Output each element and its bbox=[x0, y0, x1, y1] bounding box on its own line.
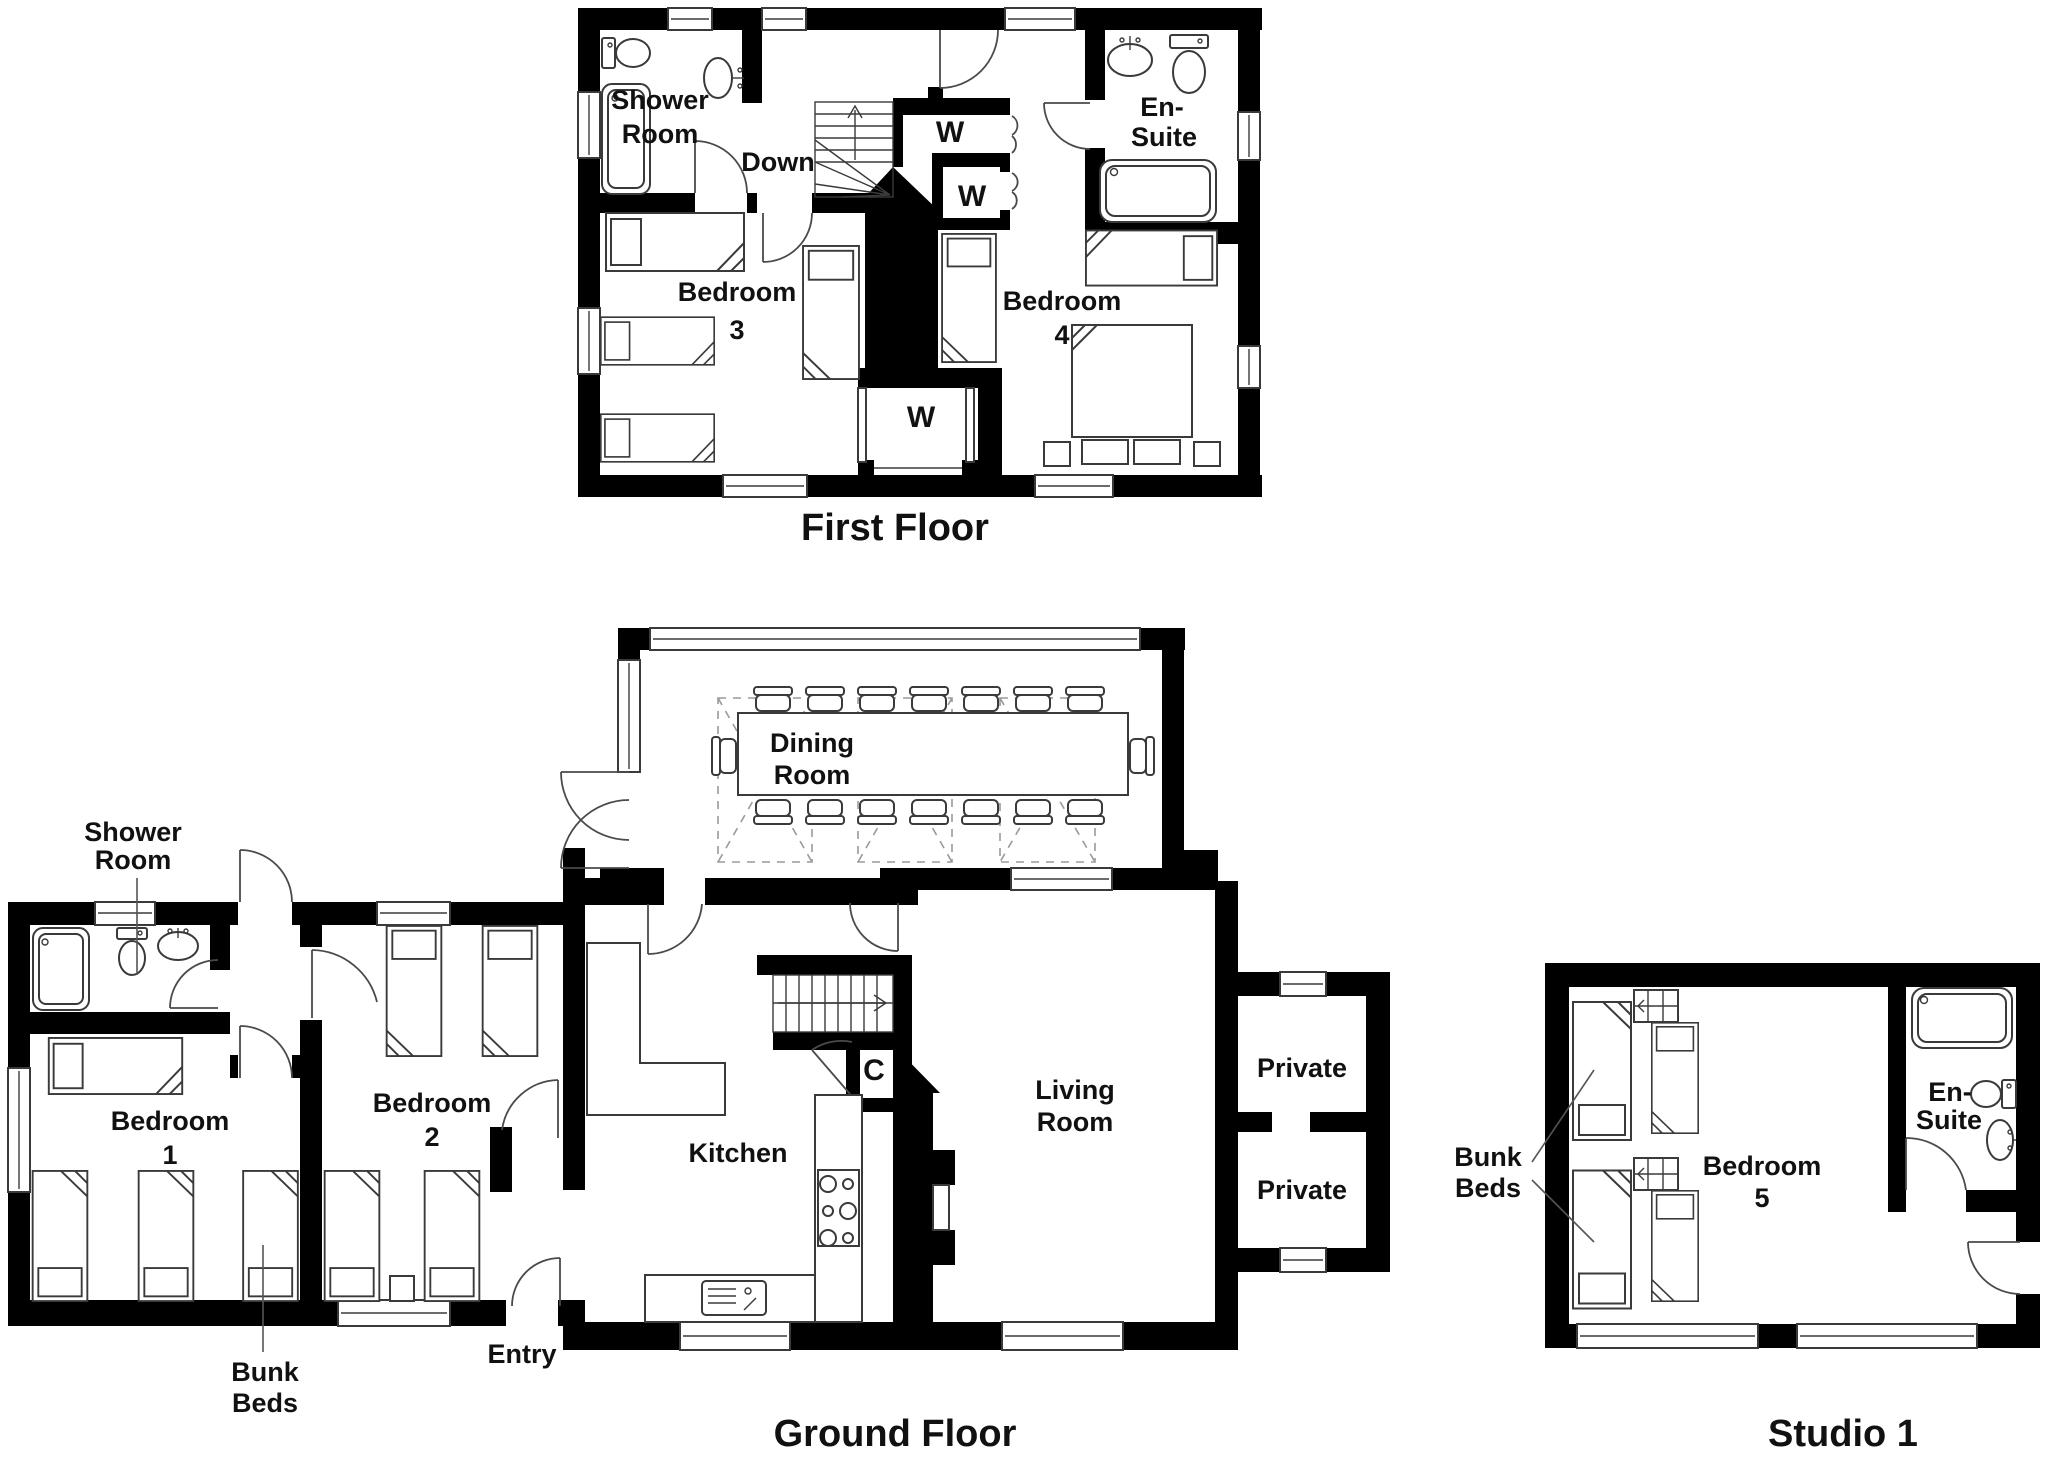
chair bbox=[754, 687, 792, 711]
bath bbox=[1100, 160, 1216, 222]
wall bbox=[1123, 1322, 1238, 1350]
private-label: Private bbox=[1257, 1175, 1347, 1205]
wall bbox=[1888, 1190, 1906, 1212]
ground-floor-plan: Shower Room Dining Room Bedroom 1 Bedroo… bbox=[8, 628, 1390, 1455]
bunk-bed bbox=[425, 1171, 480, 1301]
door bbox=[1906, 1138, 1966, 1190]
window bbox=[618, 660, 640, 772]
toilet bbox=[602, 38, 650, 68]
wall bbox=[563, 848, 585, 1190]
bunk-bed bbox=[1652, 1023, 1698, 1133]
window bbox=[1238, 112, 1260, 160]
fireplace bbox=[933, 1150, 955, 1185]
wall bbox=[618, 628, 640, 660]
bifold-closet-door bbox=[1012, 173, 1018, 209]
chair bbox=[1130, 737, 1154, 775]
wall bbox=[893, 98, 1010, 115]
chair bbox=[806, 800, 844, 824]
wall bbox=[230, 1055, 238, 1078]
wall bbox=[790, 1322, 1002, 1350]
bedroom4-label: Bedroom bbox=[1003, 286, 1122, 316]
bunk-beds-label: Bunk bbox=[1454, 1142, 1522, 1172]
single-bed bbox=[1086, 230, 1217, 285]
wall bbox=[1238, 1112, 1272, 1132]
chair bbox=[806, 687, 844, 711]
nightstand bbox=[1044, 442, 1070, 466]
wall bbox=[8, 1012, 230, 1034]
window bbox=[1797, 1324, 1977, 1348]
chair bbox=[962, 687, 1000, 711]
bedroom5-label: Bedroom bbox=[1703, 1151, 1822, 1181]
en-suite-label: Suite bbox=[1916, 1105, 1982, 1135]
first-floor-plan: Shower Room Down W W W En- Suite Bedroom… bbox=[578, 8, 1262, 549]
shower-room-label: Room bbox=[95, 845, 172, 875]
window bbox=[1005, 8, 1075, 30]
wall bbox=[1545, 963, 1569, 1348]
bunk-ladder bbox=[1634, 1158, 1678, 1190]
window bbox=[338, 1300, 450, 1326]
bunk-ladder bbox=[1634, 990, 1678, 1022]
living-room-label: Living bbox=[1035, 1075, 1115, 1105]
wall bbox=[1326, 1248, 1390, 1272]
beds bbox=[1573, 990, 1698, 1309]
wall bbox=[757, 955, 912, 975]
chair bbox=[1014, 800, 1052, 824]
shower-room-label: Shower bbox=[84, 817, 182, 847]
wall bbox=[1000, 210, 1010, 230]
wall bbox=[450, 1300, 506, 1326]
bedroom3-label: 3 bbox=[729, 315, 744, 345]
chair bbox=[1014, 687, 1052, 711]
wall bbox=[978, 388, 1002, 475]
door bbox=[940, 30, 998, 88]
window bbox=[578, 308, 600, 374]
bunk-bed bbox=[139, 1171, 194, 1301]
sink bbox=[158, 928, 198, 960]
window bbox=[1238, 346, 1260, 388]
toilet bbox=[1170, 35, 1208, 93]
floor-plan-page: Shower Room Down W W W En- Suite Bedroom… bbox=[0, 0, 2048, 1466]
shower-tray bbox=[33, 928, 89, 1010]
window bbox=[650, 628, 1140, 650]
window bbox=[95, 902, 155, 925]
sink bbox=[1108, 36, 1152, 76]
closet-w-label: W bbox=[907, 401, 936, 434]
wall bbox=[1238, 972, 1280, 996]
wall bbox=[893, 115, 903, 167]
bunk-bed bbox=[1652, 1191, 1698, 1301]
chair bbox=[1066, 800, 1104, 824]
window bbox=[8, 1068, 30, 1192]
single-bed bbox=[387, 926, 442, 1056]
french-door bbox=[561, 772, 629, 840]
en-suite-label: En- bbox=[1928, 1077, 1972, 1107]
door bbox=[695, 141, 747, 193]
en-suite-label: En- bbox=[1140, 92, 1184, 122]
stairs-up bbox=[773, 975, 893, 1032]
wall bbox=[300, 1020, 322, 1302]
single-bed bbox=[601, 317, 714, 365]
wall bbox=[300, 925, 322, 947]
wall bbox=[1238, 8, 1260, 497]
door bbox=[240, 850, 292, 902]
wall bbox=[450, 902, 585, 925]
wall bbox=[846, 1040, 860, 1098]
closet-w-label: W bbox=[936, 116, 965, 149]
chair bbox=[962, 800, 1000, 824]
studio-plan: Bunk Beds Bedroom 5 En- Suite Studio 1 bbox=[1454, 963, 2040, 1455]
bedroom1-label: Bedroom bbox=[111, 1106, 230, 1136]
window bbox=[762, 8, 806, 30]
nightstand bbox=[390, 1276, 414, 1301]
kitchen-label: Kitchen bbox=[688, 1138, 787, 1168]
chair bbox=[910, 800, 948, 824]
chair bbox=[858, 800, 896, 824]
ground-floor-title: Ground Floor bbox=[774, 1413, 1017, 1455]
bunk-bed bbox=[1573, 1002, 1631, 1140]
bifold-closet-door bbox=[1012, 116, 1017, 153]
wall bbox=[1888, 987, 1906, 1190]
nightstand bbox=[1194, 442, 1220, 466]
fireplace bbox=[933, 1230, 955, 1265]
window bbox=[1280, 1248, 1326, 1272]
living-room-label: Room bbox=[1037, 1107, 1114, 1137]
toilet bbox=[117, 928, 147, 975]
door bbox=[850, 903, 898, 951]
wall bbox=[490, 1127, 512, 1192]
floor-plan-drawing: Shower Room Down W W W En- Suite Bedroom… bbox=[0, 0, 2048, 1466]
wall bbox=[155, 902, 238, 925]
chair bbox=[712, 737, 736, 775]
wall bbox=[705, 878, 918, 905]
bunk-bed bbox=[325, 1171, 380, 1301]
bunk-bed bbox=[33, 1171, 88, 1301]
single-bed bbox=[601, 414, 714, 462]
wall bbox=[742, 25, 762, 103]
bath bbox=[1912, 988, 2012, 1048]
wall bbox=[1000, 98, 1010, 115]
bedroom1-label: 1 bbox=[162, 1140, 177, 1170]
first-floor-title: First Floor bbox=[801, 507, 989, 549]
wall bbox=[932, 218, 1010, 230]
bedroom5-label: 5 bbox=[1754, 1183, 1769, 1213]
toilet bbox=[1971, 1080, 2016, 1108]
stair-shaft bbox=[865, 167, 938, 372]
window bbox=[377, 902, 450, 925]
single-bed bbox=[49, 1038, 182, 1094]
wall bbox=[1215, 881, 1238, 1322]
bunk-bed bbox=[1573, 1171, 1631, 1309]
closet-w-label: W bbox=[958, 180, 987, 213]
shower-room-fixtures bbox=[602, 38, 744, 194]
wall bbox=[292, 902, 377, 925]
kitchen-counter bbox=[587, 943, 725, 1115]
sink bbox=[704, 58, 744, 98]
fireplace-hearth bbox=[933, 1185, 949, 1230]
bunk-beds-label: Bunk bbox=[231, 1357, 299, 1387]
window bbox=[1011, 868, 1112, 890]
double-bed bbox=[1044, 325, 1220, 466]
bedroom2-label: 2 bbox=[424, 1122, 439, 1152]
door bbox=[512, 1258, 560, 1306]
wall bbox=[1162, 628, 1184, 868]
single-bed bbox=[483, 926, 538, 1056]
bedroom2-label: Bedroom bbox=[373, 1088, 492, 1118]
wall bbox=[8, 902, 30, 1068]
dining-room-label: Dining bbox=[770, 728, 854, 758]
wall bbox=[1966, 1190, 2040, 1212]
wall bbox=[578, 193, 695, 213]
wall bbox=[1758, 1324, 1797, 1348]
single-bed bbox=[606, 213, 744, 271]
studio-title: Studio 1 bbox=[1768, 1413, 1918, 1455]
entry-label: Entry bbox=[487, 1339, 556, 1369]
wall bbox=[1366, 972, 1390, 1272]
window bbox=[1280, 972, 1326, 996]
door bbox=[1044, 103, 1090, 149]
walls bbox=[8, 628, 1390, 1350]
bedroom3-label: Bedroom bbox=[678, 277, 797, 307]
sink bbox=[1987, 1120, 2016, 1160]
wall bbox=[210, 925, 230, 970]
wall bbox=[747, 193, 757, 213]
window bbox=[1002, 1322, 1123, 1350]
wall bbox=[932, 153, 1010, 167]
wall bbox=[585, 878, 645, 905]
wall bbox=[8, 1192, 30, 1302]
bunk-beds-label: Beds bbox=[1455, 1173, 1521, 1203]
shower-room-label: Room bbox=[622, 119, 699, 149]
wall bbox=[1000, 153, 1010, 172]
window bbox=[723, 475, 807, 497]
wall bbox=[1545, 963, 2040, 987]
door bbox=[240, 1026, 292, 1078]
chair bbox=[754, 800, 792, 824]
down-label: Down bbox=[741, 147, 815, 177]
window bbox=[1577, 1324, 1758, 1348]
wall bbox=[578, 475, 1262, 497]
wall bbox=[1085, 30, 1105, 100]
door bbox=[1968, 1242, 2020, 1294]
single-bed bbox=[942, 234, 996, 362]
window bbox=[578, 92, 600, 158]
wall bbox=[1310, 1112, 1366, 1132]
chair bbox=[858, 687, 896, 711]
bedroom4-label: 4 bbox=[1054, 320, 1069, 350]
window bbox=[1035, 475, 1113, 497]
wall bbox=[918, 868, 1011, 890]
door bbox=[312, 950, 377, 1018]
chimney bbox=[893, 1093, 933, 1322]
en-suite-label: Suite bbox=[1131, 122, 1197, 152]
single-bed bbox=[803, 246, 859, 379]
wall bbox=[1238, 1248, 1280, 1272]
kitchen-fixtures bbox=[587, 943, 862, 1322]
closet-c-label: C bbox=[863, 1054, 885, 1087]
wall bbox=[858, 368, 1002, 388]
shower-room-fixtures bbox=[33, 928, 198, 1010]
private-label: Private bbox=[1257, 1053, 1347, 1083]
wall bbox=[2016, 1294, 2040, 1348]
doors bbox=[1906, 1138, 2020, 1294]
bunk-beds-label: Beds bbox=[232, 1388, 298, 1418]
chair bbox=[910, 687, 948, 711]
wall bbox=[563, 1322, 680, 1350]
window bbox=[680, 1322, 790, 1350]
wall bbox=[1112, 868, 1216, 890]
shower-room-label: Shower bbox=[611, 85, 709, 115]
window bbox=[668, 8, 712, 30]
wall bbox=[1545, 1324, 1577, 1348]
chair bbox=[1066, 687, 1104, 711]
dining-room-label: Room bbox=[774, 760, 851, 790]
bunk-bed bbox=[243, 1171, 298, 1301]
door bbox=[648, 904, 702, 954]
wall bbox=[8, 1300, 338, 1326]
wall bbox=[578, 8, 600, 497]
